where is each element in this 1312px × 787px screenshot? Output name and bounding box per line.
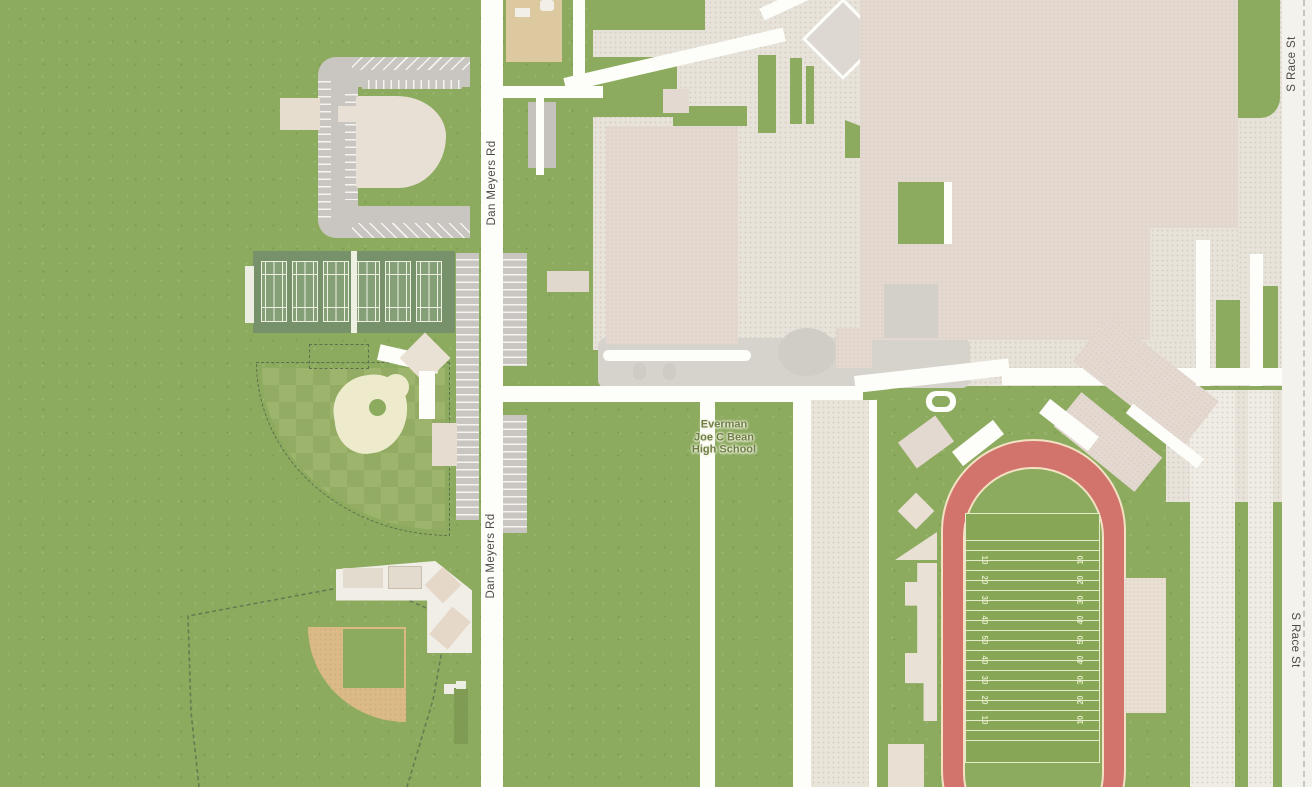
yard-number: 30 (1077, 592, 1085, 608)
school-label-line2: Joe C Bean (692, 431, 756, 444)
building-small-west (547, 271, 589, 292)
yard-number: 50 (1077, 632, 1085, 648)
lawn-northeast-corner (1238, 0, 1280, 118)
yard-line (966, 540, 1099, 541)
baseball-dugout (454, 688, 468, 744)
building-west-wing (606, 126, 738, 344)
yard-number: 30 (980, 672, 988, 688)
east-access-road-1 (1196, 240, 1210, 386)
school-label-line1: Everman (692, 418, 756, 431)
stadium-corridor (811, 400, 869, 787)
lawn-5 (790, 58, 802, 124)
dropoff-lane (603, 350, 751, 361)
building-courtyard-green (898, 182, 944, 244)
grandstand-east (1124, 578, 1166, 713)
road-s-race-centerline (1303, 0, 1305, 787)
road-label-s-race-north: S Race St (1286, 36, 1298, 91)
stadium-building-south (888, 744, 924, 787)
yard-number: 20 (1077, 572, 1085, 588)
lawn-4 (758, 55, 776, 133)
yard-number: 20 (980, 572, 988, 588)
lawn-east-strip-2 (1262, 286, 1278, 368)
yard-number: 40 (1077, 652, 1085, 668)
path-through-gray-building (536, 95, 544, 175)
yard-number: 10 (980, 712, 988, 728)
yard-number: 20 (980, 692, 988, 708)
yard-line (966, 740, 1099, 741)
building-courtyard-gray (884, 284, 938, 338)
road-label-s-race-south: S Race St (1289, 612, 1301, 667)
yard-number: 10 (1077, 552, 1085, 568)
stadium-corridor-east-lane (869, 400, 877, 787)
baseball-building-1 (343, 568, 383, 588)
path-north-vertical (573, 0, 585, 90)
baseball-building-2 (389, 567, 421, 588)
building-small-north (663, 89, 689, 113)
playground-equipment-2 (540, 0, 554, 11)
school-label-line3: High School (692, 443, 756, 456)
lawn-6 (806, 66, 814, 124)
map-canvas[interactable]: 101020203030404050504040303020201010 Eve… (0, 0, 1312, 787)
road-south-vertical (700, 402, 715, 787)
road-s-race (1282, 0, 1312, 787)
yard-number: 10 (980, 552, 988, 568)
stadium-corridor-west-lane (793, 400, 811, 787)
road-label-dan-meyers-south: Dan Meyers Rd (485, 513, 497, 598)
baseball-dugout-cap (456, 681, 466, 689)
lawn-east-strip-1 (1216, 300, 1240, 368)
school-poi-label[interactable]: Everman Joe C Bean High School (692, 418, 756, 456)
yard-number: 30 (980, 592, 988, 608)
courtyard-circle (778, 328, 836, 376)
yard-number: 40 (980, 652, 988, 668)
football-field: 101020203030404050504040303020201010 (965, 513, 1100, 763)
yard-number: 20 (1077, 692, 1085, 708)
yard-number: 40 (1077, 612, 1085, 628)
yard-number: 30 (1077, 672, 1085, 688)
east-driveway-1 (1190, 390, 1235, 787)
dropoff-island-1 (633, 363, 646, 380)
dropoff-island-2 (663, 363, 676, 380)
road-dan-meyers (481, 0, 503, 787)
playground-equipment-1 (515, 8, 530, 17)
east-driveway-2 (1248, 390, 1273, 787)
traffic-island-green (932, 396, 950, 407)
road-label-dan-meyers-north: Dan Meyers Rd (486, 140, 498, 225)
yard-line (966, 730, 1099, 731)
east-access-road-2 (1250, 254, 1263, 386)
yard-number: 50 (980, 632, 988, 648)
lawn-1 (593, 0, 705, 30)
yard-number: 40 (980, 612, 988, 628)
yard-number: 10 (1077, 712, 1085, 728)
path-north-horizontal (503, 86, 603, 98)
building-courtyard-path (944, 182, 952, 244)
